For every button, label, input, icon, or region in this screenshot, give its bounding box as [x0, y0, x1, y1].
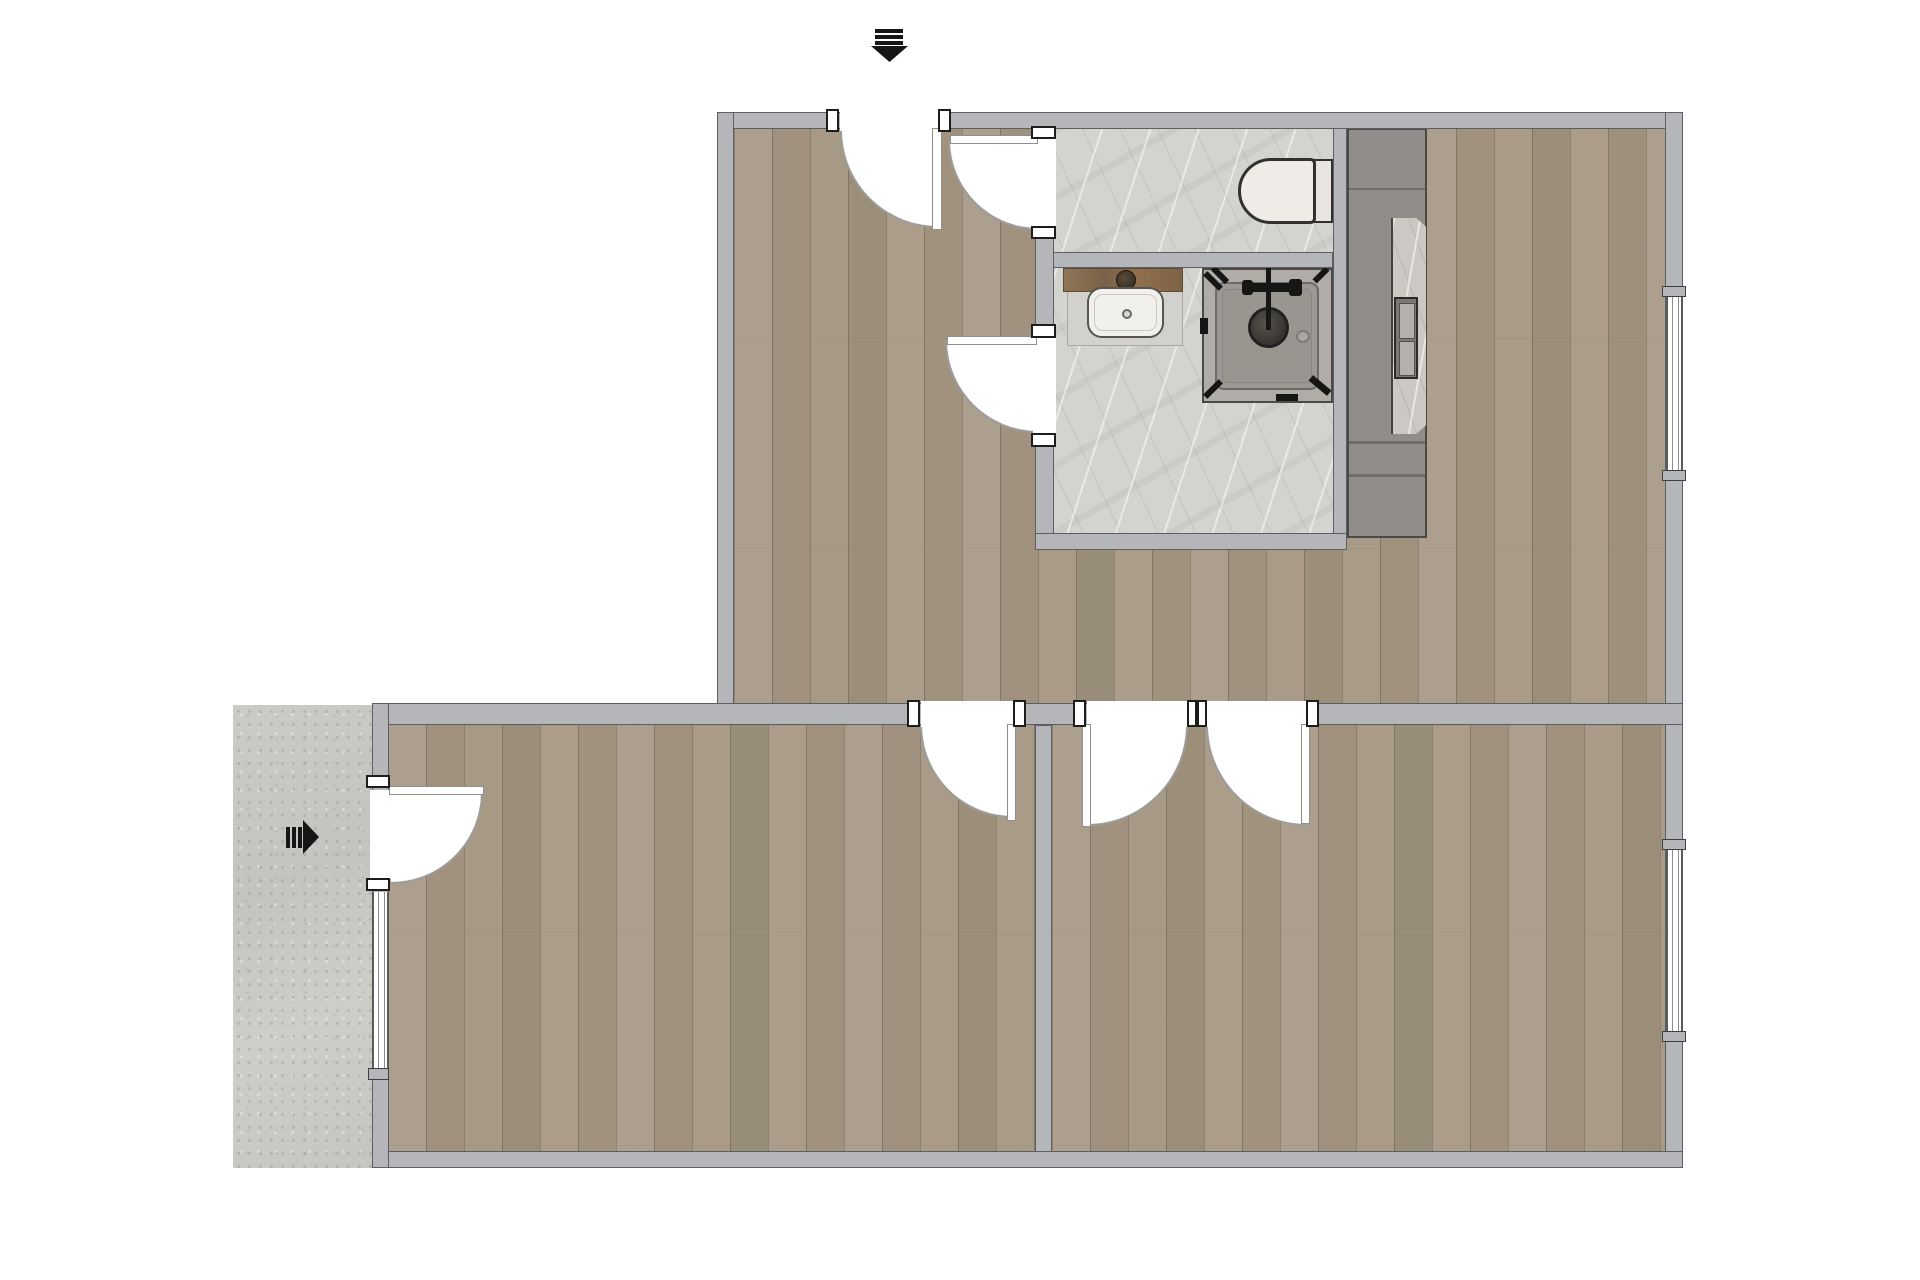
door-post — [1187, 700, 1197, 727]
shower-faucet-bar-icon — [1249, 283, 1292, 292]
door-post — [1306, 700, 1319, 727]
room-br-door-b-opening — [1207, 701, 1307, 727]
upper-left-wall — [717, 112, 734, 725]
top-entrance-arrow-icon — [871, 28, 909, 62]
room-bl-door-opening — [921, 701, 1013, 727]
bathroom-bottom-wall — [1035, 533, 1347, 550]
counter-divider — [1349, 188, 1425, 190]
door-post — [1197, 700, 1207, 727]
main-entrance-opening — [840, 110, 938, 131]
room-br-door-a-leaf — [1082, 724, 1091, 827]
bottom-rooms-divider-wall — [1035, 725, 1052, 1152]
window-end-cap — [1662, 1031, 1686, 1042]
wc-door-opening — [1033, 139, 1056, 226]
window-end-cap — [368, 1068, 389, 1080]
window-end-cap — [1662, 286, 1686, 297]
main-entrance-door-leaf — [932, 128, 942, 230]
toilet — [1238, 157, 1334, 225]
door-post — [938, 109, 951, 132]
bathroom-door-leaf — [947, 336, 1037, 345]
door-post — [1031, 126, 1056, 139]
right-window-lower — [1666, 849, 1683, 1033]
side-entrance-opening — [370, 790, 391, 879]
counter-divider — [1349, 441, 1425, 444]
door-post — [366, 878, 390, 891]
right-window-upper — [1666, 296, 1683, 472]
door-post — [366, 775, 390, 788]
left-window — [372, 892, 389, 1070]
shower-hinge-icon — [1313, 267, 1330, 284]
sink-cooktop-unit — [1394, 297, 1418, 379]
door-post — [1031, 226, 1056, 239]
washbasin — [1087, 287, 1164, 338]
left-entrance-arrow-icon — [286, 820, 320, 854]
wc-bathroom-divider-wall — [1053, 252, 1333, 268]
door-post — [907, 700, 920, 727]
room-bl-door-leaf — [1007, 724, 1016, 821]
room-bottom-left-floor — [388, 725, 1035, 1152]
unit-basin — [1399, 341, 1415, 376]
shower — [1202, 268, 1333, 403]
room-br-door-a-opening — [1087, 701, 1187, 727]
shower-faucet-knob-icon — [1242, 280, 1253, 295]
toilet-bowl — [1238, 158, 1316, 224]
floor-plan — [0, 0, 1920, 1280]
shower-faucet-knob-icon — [1289, 279, 1302, 296]
door-post — [1013, 700, 1026, 727]
middle-wall — [372, 703, 1683, 725]
room-br-door-b-leaf — [1301, 724, 1310, 824]
unit-basin — [1399, 303, 1415, 339]
counter-divider — [1349, 474, 1425, 477]
window-end-cap — [1662, 839, 1686, 850]
shower-hinge-icon — [1200, 318, 1208, 334]
bathroom-right-wall — [1333, 128, 1347, 550]
patio-concrete-floor — [233, 705, 372, 1168]
door-post — [1073, 700, 1086, 727]
bathroom-door-opening — [1033, 338, 1056, 433]
washbasin-drain — [1122, 309, 1132, 319]
shower-hinge-icon — [1276, 394, 1298, 401]
shower-drain-cap — [1296, 330, 1310, 343]
door-post — [1031, 324, 1056, 338]
door-post — [826, 109, 839, 132]
wc-door-leaf — [950, 135, 1038, 144]
window-end-cap — [1662, 470, 1686, 481]
side-entrance-door-leaf — [389, 786, 484, 795]
shower-faucet-pipe-icon — [1266, 264, 1271, 330]
door-post — [1031, 433, 1056, 447]
bottom-wall — [372, 1151, 1683, 1168]
